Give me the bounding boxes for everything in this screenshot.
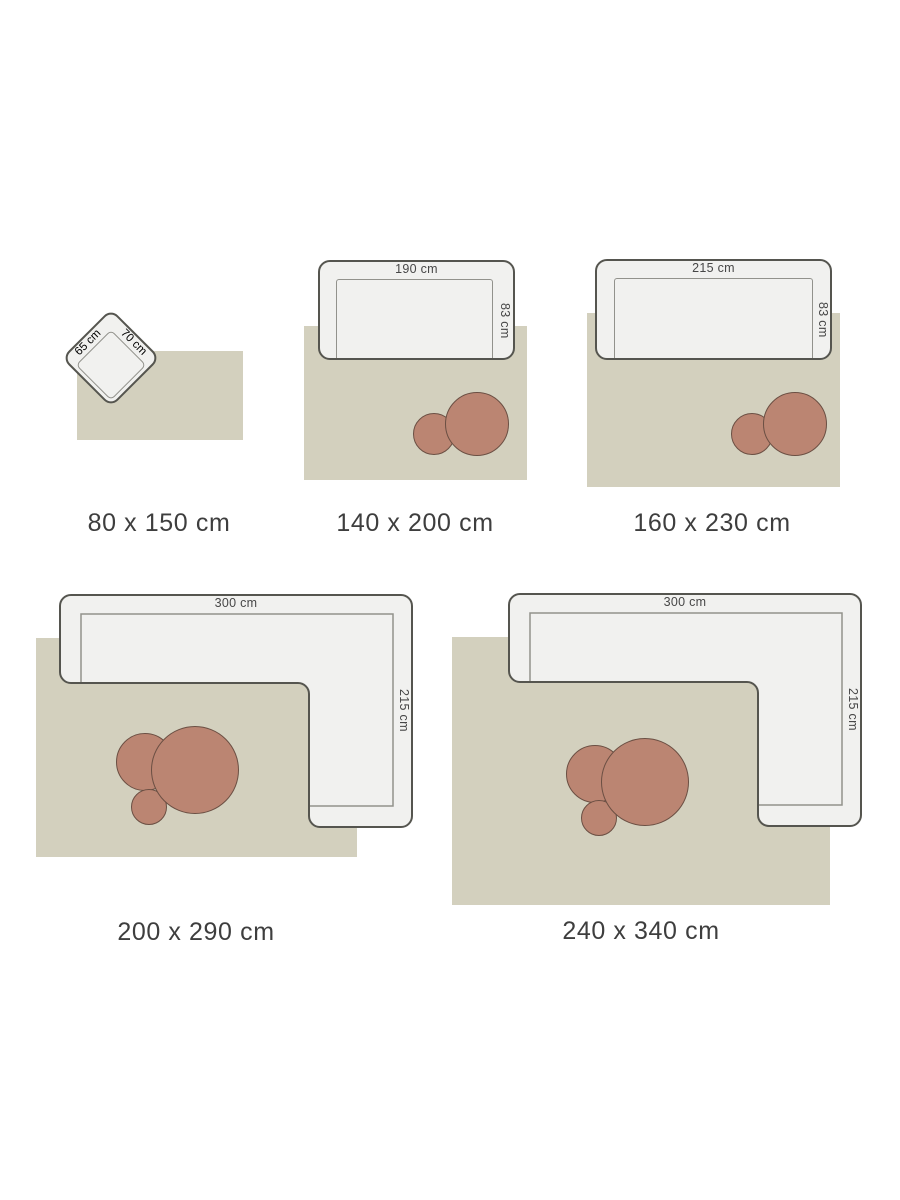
- sofa-width-label: 300 cm: [508, 596, 862, 610]
- sofa-depth-label: 83 cm: [497, 281, 511, 360]
- corner-sofa-outline: [60, 595, 412, 827]
- sofa-depth-label: 215 cm: [844, 613, 860, 805]
- rug-size-label: 240 x 340 cm: [491, 919, 791, 944]
- side-table-large: [151, 726, 239, 814]
- side-table-large: [763, 392, 827, 456]
- sofa-width-label: 300 cm: [59, 597, 413, 611]
- rug-size-label: 80 x 150 cm: [9, 511, 309, 536]
- sofa-depth-label: 215 cm: [395, 614, 411, 806]
- rug-size-label: 200 x 290 cm: [46, 920, 346, 945]
- rug-size-label: 160 x 230 cm: [562, 511, 862, 536]
- corner-sofa: [59, 594, 413, 828]
- rug-size-label: 140 x 200 cm: [265, 511, 565, 536]
- sofa-seat: [336, 279, 493, 358]
- sofa-depth-label: 83 cm: [815, 280, 829, 360]
- side-table-large: [601, 738, 689, 826]
- sofa-width-label: 215 cm: [595, 262, 832, 276]
- sofa-width-label: 190 cm: [318, 263, 515, 277]
- rug-size-guide: 65 cm 70 cm 80 x 150 cm 190 cm 83 cm 140…: [0, 0, 900, 1200]
- side-table-large: [445, 392, 509, 456]
- sofa-seat: [614, 278, 813, 358]
